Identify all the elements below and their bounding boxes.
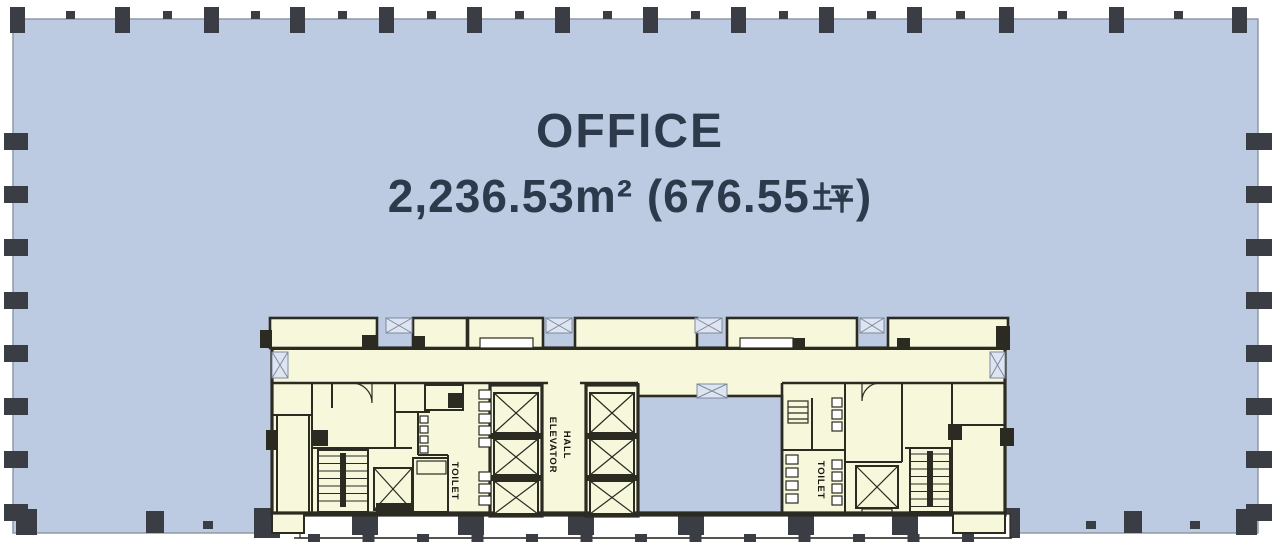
top-band-cap <box>362 335 377 348</box>
toilet-stall-icon <box>479 414 491 423</box>
toilet-right-label: TOILET <box>815 461 826 499</box>
toilet-stall-icon <box>479 496 491 505</box>
stair-rail <box>927 451 933 507</box>
column-tick <box>526 534 538 542</box>
elevator-shaft-icon <box>590 481 634 514</box>
elevator-pit <box>376 503 412 512</box>
column-tick <box>308 534 320 542</box>
column-tick <box>853 534 865 542</box>
column-tick <box>66 11 75 19</box>
column-marker <box>1246 186 1272 203</box>
elevator-shaft-icon <box>494 439 538 475</box>
core-end-block-left <box>272 513 304 533</box>
column-tick <box>251 11 260 19</box>
tsubo-kanji-glyph <box>813 176 853 218</box>
toilet-stall-icon <box>479 438 491 447</box>
toilet-stall-icon <box>479 390 491 399</box>
column-marker <box>731 7 746 33</box>
toilet-stall-icon <box>420 426 428 433</box>
column-tick <box>799 534 811 542</box>
column-tick <box>962 534 974 542</box>
column-marker <box>907 7 922 33</box>
top-band-box <box>575 318 697 348</box>
column-marker <box>555 7 570 33</box>
toilet-stall-icon <box>479 402 491 411</box>
floor-plan-drawing: ELEVATOR HALL TOILET TOILET <box>0 0 1280 556</box>
column-marker <box>4 239 28 256</box>
column-marker <box>4 292 28 309</box>
toilet-stall-icon <box>786 481 798 490</box>
column-marker <box>467 7 482 33</box>
column-tick <box>1058 11 1067 19</box>
column-marker <box>4 451 28 468</box>
core-top-band <box>260 318 1010 350</box>
column-tick <box>1086 521 1096 529</box>
column-tick <box>691 11 700 19</box>
column-marker <box>1246 239 1272 256</box>
column-marker <box>379 7 394 33</box>
column-marker <box>115 7 130 33</box>
column-marker <box>1236 509 1257 535</box>
toilet-stall-icon <box>832 496 842 505</box>
toilet-stall-icon <box>832 422 842 431</box>
column-marker <box>819 7 834 33</box>
door-swing-icon <box>990 352 1005 378</box>
column-marker <box>1109 7 1124 33</box>
column-marker <box>1124 511 1142 533</box>
column-tick <box>363 534 375 542</box>
toilet-stall-icon <box>479 472 491 481</box>
floor-plan-page: ELEVATOR HALL TOILET TOILET OFFICE 2,236… <box>0 0 1280 556</box>
top-band-cap <box>793 338 805 348</box>
top-band-ledge <box>740 338 793 348</box>
toilet-stall-icon <box>420 416 428 423</box>
column-marker <box>146 511 164 533</box>
toilet-stall-icon <box>479 484 491 493</box>
column-tick <box>744 534 756 542</box>
toilet-stall-icon <box>832 472 842 481</box>
column-marker <box>290 7 305 33</box>
toilet-stall-icon <box>832 460 842 469</box>
column-tick <box>867 11 876 19</box>
elevator-shaft-icon <box>590 393 634 433</box>
column-tick <box>581 534 593 542</box>
top-band-box <box>270 318 377 348</box>
toilet-stall-icon <box>479 426 491 435</box>
column-marker <box>1246 451 1272 468</box>
column-tick <box>427 11 436 19</box>
top-band-cap <box>413 336 425 348</box>
door-swing-icon <box>386 318 412 333</box>
door-swing-icon <box>272 352 288 378</box>
building-core: ELEVATOR HALL TOILET TOILET <box>260 318 1014 542</box>
column-marker <box>999 7 1014 33</box>
top-band-cap <box>996 326 1010 350</box>
column-marker <box>4 345 28 362</box>
core-end-block-right <box>953 513 1005 533</box>
column-tick <box>1190 521 1200 529</box>
column-tick <box>956 11 965 19</box>
toilet-stall-icon <box>832 398 842 407</box>
door-swing-icon <box>546 318 572 333</box>
column-marker <box>1246 345 1272 362</box>
column-tick <box>779 11 788 19</box>
top-band-ledge <box>480 338 533 348</box>
area-close-paren: ) <box>856 173 872 219</box>
column-marker <box>643 7 658 33</box>
stair-rail <box>340 453 346 507</box>
toilet-stall-icon <box>420 436 428 443</box>
area-value: 2,236.53m² (676.55 <box>388 173 810 219</box>
column-marker <box>10 7 25 33</box>
toilet-left-label: TOILET <box>449 462 460 500</box>
light-well-void <box>638 396 782 513</box>
column-tick <box>203 521 213 529</box>
area-label: 2,236.53m² (676.55 ) <box>388 170 872 219</box>
column-tick <box>338 11 347 19</box>
column-tick <box>472 534 484 542</box>
toilet-stall-icon <box>786 455 798 464</box>
column-tick <box>515 11 524 19</box>
title-block: OFFICE 2,236.53m² (676.55 ) <box>20 108 1240 219</box>
toilet-stall-icon <box>786 468 798 477</box>
elevator-shaft-icon <box>494 393 538 433</box>
door-swing-icon <box>860 318 884 333</box>
column-marker <box>1232 7 1247 33</box>
elevator-hall-label-line1: ELEVATOR <box>547 417 558 474</box>
column-marker <box>16 509 37 535</box>
door-swing-icon <box>697 384 727 398</box>
column-tick <box>603 11 612 19</box>
column-marker <box>1246 133 1272 150</box>
column-tick <box>690 534 702 542</box>
office-title: OFFICE <box>536 108 724 156</box>
column-tick <box>163 11 172 19</box>
toilet-stall-icon <box>420 446 428 453</box>
column-marker <box>1246 398 1272 415</box>
door-swing-icon <box>695 318 722 333</box>
column-tick <box>417 534 429 542</box>
column-marker <box>204 7 219 33</box>
elevator-shaft-icon <box>856 466 898 508</box>
elevator-hall-label-line2: HALL <box>561 431 572 460</box>
top-band-cap <box>260 330 272 348</box>
toilet-stall-icon <box>786 494 798 503</box>
column-tick <box>635 534 647 542</box>
column-tick <box>908 534 920 542</box>
elevator-shaft-icon <box>494 481 538 514</box>
toilet-stall-icon <box>832 484 842 493</box>
column-tick <box>1174 11 1183 19</box>
elevator-shaft-icon <box>590 439 634 475</box>
toilet-stall-icon <box>832 410 842 419</box>
column-marker <box>1246 292 1272 309</box>
top-band-cap <box>897 338 910 348</box>
column-marker <box>4 398 28 415</box>
